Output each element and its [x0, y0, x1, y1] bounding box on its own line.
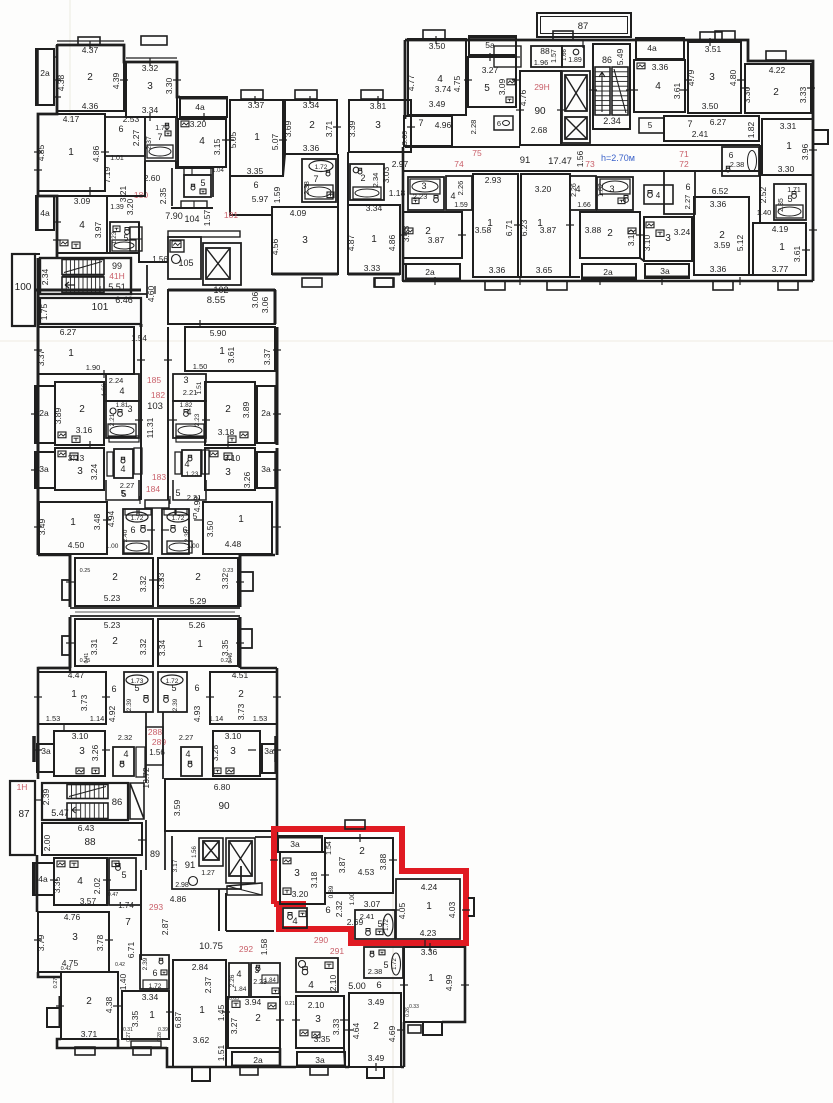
svg-text:6.87: 6.87	[173, 1011, 183, 1028]
svg-text:1: 1	[786, 141, 792, 152]
svg-text:3.09: 3.09	[497, 78, 507, 95]
svg-text:3: 3	[294, 868, 300, 879]
svg-text:2: 2	[195, 572, 201, 583]
svg-text:3: 3	[421, 181, 426, 191]
svg-text:1Н: 1Н	[17, 782, 28, 792]
svg-text:4.87: 4.87	[346, 234, 356, 251]
svg-text:3.89: 3.89	[241, 401, 251, 418]
svg-text:6: 6	[376, 980, 381, 991]
svg-text:1.66: 1.66	[562, 49, 568, 61]
svg-text:4.69: 4.69	[387, 1025, 397, 1042]
svg-text:4a: 4a	[647, 43, 657, 53]
svg-text:1: 1	[68, 147, 74, 158]
svg-text:3.58: 3.58	[475, 225, 492, 235]
svg-text:1: 1	[149, 1010, 155, 1021]
svg-text:2.32: 2.32	[334, 900, 344, 917]
svg-text:1: 1	[197, 639, 203, 650]
svg-text:100: 100	[15, 282, 32, 293]
svg-text:3a: 3a	[264, 746, 274, 756]
svg-text:13.72: 13.72	[141, 767, 151, 789]
svg-text:1.72: 1.72	[131, 515, 144, 522]
svg-text:3.03: 3.03	[381, 166, 391, 183]
svg-text:5: 5	[175, 488, 180, 498]
svg-text:3.36: 3.36	[710, 199, 727, 209]
svg-text:3.61: 3.61	[226, 346, 236, 363]
svg-text:3.49: 3.49	[368, 1053, 385, 1063]
svg-text:2.34: 2.34	[603, 116, 621, 126]
svg-text:90: 90	[218, 801, 230, 812]
svg-text:1.96: 1.96	[534, 58, 549, 67]
svg-text:3.34: 3.34	[303, 100, 320, 110]
svg-text:6: 6	[194, 683, 199, 693]
svg-text:3.30: 3.30	[778, 164, 795, 174]
svg-text:293: 293	[149, 902, 163, 912]
svg-text:5: 5	[648, 121, 653, 130]
svg-text:1.89: 1.89	[568, 57, 582, 64]
svg-text:3a: 3a	[39, 464, 49, 474]
svg-text:3a: 3a	[290, 839, 300, 849]
svg-text:1.14: 1.14	[90, 714, 105, 723]
svg-text:3a: 3a	[261, 464, 271, 474]
svg-text:1.00: 1.00	[349, 892, 356, 905]
svg-text:3.26: 3.26	[90, 744, 100, 761]
svg-text:41Н: 41Н	[109, 271, 125, 281]
svg-text:4.38: 4.38	[104, 996, 114, 1013]
svg-text:1.27: 1.27	[201, 870, 215, 877]
svg-text:1.54: 1.54	[326, 841, 333, 855]
svg-text:2.34: 2.34	[371, 173, 380, 188]
svg-text:11.31: 11.31	[145, 417, 155, 438]
svg-text:4: 4	[123, 749, 128, 759]
svg-text:4.53: 4.53	[358, 867, 375, 877]
svg-text:2: 2	[112, 636, 118, 647]
svg-text:88: 88	[84, 837, 96, 848]
svg-text:4: 4	[185, 749, 190, 759]
svg-text:0.27: 0.27	[53, 978, 59, 989]
svg-text:3.31: 3.31	[89, 638, 99, 655]
svg-text:1.66: 1.66	[577, 202, 591, 209]
svg-text:4.92: 4.92	[192, 495, 202, 512]
svg-text:1.54: 1.54	[131, 334, 147, 343]
svg-text:3.34: 3.34	[142, 992, 159, 1002]
svg-text:17.47: 17.47	[548, 156, 572, 167]
svg-text:h=2.70м: h=2.70м	[601, 153, 635, 163]
svg-text:7: 7	[687, 119, 692, 129]
svg-text:2.28: 2.28	[469, 120, 478, 135]
svg-text:4.51: 4.51	[232, 670, 249, 680]
svg-text:4.24: 4.24	[421, 882, 438, 892]
svg-text:1.45: 1.45	[216, 1004, 226, 1021]
svg-text:3.59: 3.59	[172, 799, 182, 816]
svg-text:1: 1	[68, 348, 74, 359]
svg-text:4.50: 4.50	[68, 540, 85, 550]
svg-text:4.94: 4.94	[106, 510, 116, 527]
svg-text:72: 72	[679, 159, 689, 169]
svg-text:3.50: 3.50	[205, 520, 215, 537]
svg-text:4a: 4a	[40, 208, 50, 218]
svg-text:88: 88	[540, 46, 550, 56]
svg-text:3.62: 3.62	[193, 1035, 210, 1045]
svg-text:4.17: 4.17	[63, 114, 80, 124]
svg-text:1.75: 1.75	[39, 303, 49, 320]
svg-text:2.10: 2.10	[328, 974, 338, 991]
svg-text:3.06: 3.06	[260, 296, 270, 313]
svg-text:4.75: 4.75	[452, 75, 462, 92]
svg-text:5.26: 5.26	[189, 620, 206, 630]
svg-text:3.69: 3.69	[283, 120, 293, 137]
svg-text:75: 75	[472, 148, 482, 158]
svg-text:3.88: 3.88	[378, 853, 388, 870]
svg-text:4a: 4a	[195, 102, 205, 112]
svg-text:1: 1	[426, 901, 432, 912]
svg-text:3.49: 3.49	[429, 99, 446, 109]
svg-text:1.40: 1.40	[118, 973, 128, 990]
svg-text:87: 87	[18, 809, 30, 820]
svg-text:4: 4	[450, 191, 455, 201]
svg-text:3.06: 3.06	[250, 291, 260, 308]
svg-text:3.78: 3.78	[95, 934, 105, 951]
svg-text:182: 182	[151, 390, 165, 400]
svg-text:4: 4	[120, 464, 125, 474]
svg-text:0.41: 0.41	[84, 653, 90, 664]
svg-text:3.20: 3.20	[292, 889, 309, 899]
svg-text:1.51: 1.51	[216, 1044, 226, 1061]
svg-text:2.39: 2.39	[142, 957, 149, 970]
svg-text:3.10: 3.10	[642, 234, 652, 251]
svg-text:2a: 2a	[603, 267, 613, 277]
svg-text:3.87: 3.87	[428, 235, 445, 245]
svg-text:2.39: 2.39	[41, 788, 51, 805]
svg-text:4.76: 4.76	[64, 912, 81, 922]
svg-text:2.26: 2.26	[571, 183, 578, 197]
svg-text:3.33: 3.33	[364, 263, 381, 273]
svg-text:3.49: 3.49	[368, 997, 385, 1007]
svg-text:1.40: 1.40	[757, 208, 772, 217]
svg-text:2.38: 2.38	[730, 160, 745, 169]
svg-text:6.71: 6.71	[504, 219, 514, 236]
svg-text:4.86: 4.86	[387, 234, 397, 251]
svg-text:5.49: 5.49	[615, 48, 625, 65]
svg-text:6: 6	[325, 905, 330, 916]
svg-text:3.37: 3.37	[262, 348, 272, 365]
svg-text:1.59: 1.59	[272, 186, 282, 203]
svg-text:6: 6	[253, 180, 258, 190]
svg-text:3: 3	[315, 1014, 321, 1025]
svg-text:1.72: 1.72	[149, 983, 162, 990]
svg-text:4.38: 4.38	[56, 74, 66, 91]
svg-text:87: 87	[578, 21, 589, 32]
svg-text:2: 2	[309, 120, 315, 131]
svg-text:3.31: 3.31	[780, 121, 797, 131]
svg-text:101: 101	[92, 302, 109, 313]
svg-text:4.03: 4.03	[447, 901, 457, 918]
svg-text:1.59: 1.59	[454, 202, 468, 209]
svg-text:3.37: 3.37	[248, 100, 265, 110]
svg-text:3.20: 3.20	[535, 184, 552, 194]
svg-text:4.39: 4.39	[111, 72, 121, 89]
svg-text:86: 86	[112, 797, 123, 808]
svg-text:4.56: 4.56	[270, 238, 280, 255]
svg-text:3.73: 3.73	[79, 694, 89, 711]
svg-text:2: 2	[359, 846, 365, 857]
svg-text:99: 99	[112, 261, 122, 271]
svg-text:3: 3	[147, 81, 153, 92]
svg-text:5.07: 5.07	[270, 133, 280, 150]
svg-text:7: 7	[418, 118, 423, 128]
svg-text:3: 3	[77, 466, 83, 477]
svg-text:3.09: 3.09	[74, 196, 91, 206]
svg-text:3a: 3a	[41, 746, 51, 756]
svg-text:1: 1	[779, 242, 785, 253]
svg-text:4.76: 4.76	[518, 89, 528, 106]
svg-text:2: 2	[255, 1013, 261, 1024]
svg-text:1.81: 1.81	[116, 402, 129, 409]
svg-text:1.53: 1.53	[46, 714, 61, 723]
svg-text:2.10: 2.10	[308, 1000, 325, 1010]
svg-text:91: 91	[185, 860, 196, 871]
svg-text:6.71: 6.71	[126, 941, 136, 958]
svg-text:5: 5	[200, 178, 205, 188]
svg-text:2a: 2a	[39, 408, 49, 418]
svg-text:73: 73	[585, 159, 595, 169]
svg-text:7.19: 7.19	[102, 166, 112, 183]
svg-text:0.46: 0.46	[228, 653, 234, 664]
svg-text:3.36: 3.36	[303, 143, 320, 153]
svg-text:1.00: 1.00	[187, 543, 200, 550]
svg-text:3.71: 3.71	[81, 1029, 98, 1039]
svg-text:1.72: 1.72	[315, 164, 328, 171]
svg-text:181: 181	[224, 210, 238, 220]
svg-text:2.00: 2.00	[42, 834, 52, 851]
svg-text:1.73: 1.73	[131, 678, 144, 685]
svg-text:3.18: 3.18	[309, 871, 319, 888]
svg-text:6: 6	[111, 684, 116, 694]
svg-text:1: 1	[238, 514, 244, 525]
svg-text:2a: 2a	[253, 1055, 263, 1065]
svg-text:1.14: 1.14	[209, 714, 224, 723]
svg-text:5: 5	[377, 919, 382, 929]
svg-text:4.96: 4.96	[435, 120, 452, 130]
svg-text:4.77: 4.77	[406, 74, 416, 91]
svg-text:3.17: 3.17	[172, 859, 179, 872]
svg-text:4.79: 4.79	[686, 69, 696, 86]
svg-text:1.56: 1.56	[152, 255, 168, 264]
svg-text:2: 2	[225, 404, 231, 415]
svg-text:1: 1	[428, 973, 434, 984]
svg-text:1.72: 1.72	[392, 958, 398, 970]
svg-text:6.46: 6.46	[115, 295, 133, 305]
svg-text:3: 3	[183, 375, 188, 385]
svg-text:6.27: 6.27	[60, 327, 77, 337]
svg-text:3.37: 3.37	[36, 349, 46, 366]
svg-text:1: 1	[254, 132, 260, 143]
svg-text:2.27: 2.27	[179, 733, 194, 742]
svg-text:7: 7	[313, 174, 318, 184]
svg-text:5: 5	[484, 83, 490, 94]
svg-text:4.19: 4.19	[772, 224, 789, 234]
svg-text:5.23: 5.23	[104, 593, 121, 603]
svg-text:1.56: 1.56	[149, 748, 165, 757]
svg-text:3.32: 3.32	[220, 572, 230, 589]
svg-text:0.89: 0.89	[328, 885, 335, 898]
svg-text:0.26: 0.26	[405, 1007, 411, 1017]
svg-text:4.47: 4.47	[68, 670, 85, 680]
svg-text:1.23: 1.23	[186, 471, 199, 478]
svg-text:2.84: 2.84	[192, 962, 209, 972]
svg-text:3.94: 3.94	[245, 997, 262, 1007]
svg-text:4.09: 4.09	[290, 208, 307, 218]
svg-text:3.73: 3.73	[236, 703, 246, 720]
svg-text:2: 2	[373, 1021, 379, 1032]
svg-text:1.39: 1.39	[110, 204, 124, 211]
svg-text:2.32: 2.32	[118, 733, 133, 742]
svg-text:3: 3	[79, 746, 85, 757]
svg-text:4.05: 4.05	[397, 902, 407, 919]
svg-text:1.56: 1.56	[575, 150, 585, 167]
svg-text:2.27: 2.27	[131, 129, 141, 146]
svg-text:3.48: 3.48	[92, 513, 102, 530]
svg-text:288: 288	[148, 727, 162, 737]
svg-text:3.35: 3.35	[247, 166, 264, 176]
svg-text:3.51: 3.51	[705, 44, 722, 54]
svg-text:3.69: 3.69	[400, 131, 409, 146]
svg-text:3.34: 3.34	[157, 639, 167, 656]
svg-text:3.36: 3.36	[421, 947, 438, 957]
svg-text:3.50: 3.50	[429, 41, 446, 51]
svg-text:3.88: 3.88	[585, 225, 602, 235]
svg-text:5: 5	[121, 488, 126, 498]
svg-text:6: 6	[118, 124, 123, 134]
svg-text:2.97: 2.97	[392, 159, 409, 169]
svg-text:1.01: 1.01	[110, 155, 124, 162]
svg-text:1.84: 1.84	[264, 978, 276, 984]
svg-text:1.50: 1.50	[193, 362, 208, 371]
svg-text:3.26: 3.26	[242, 471, 252, 488]
svg-text:91: 91	[520, 155, 531, 166]
svg-text:2.39: 2.39	[172, 698, 179, 711]
svg-text:2.35: 2.35	[158, 187, 168, 204]
svg-text:104: 104	[184, 214, 199, 224]
svg-text:6: 6	[729, 150, 734, 160]
svg-text:3.32: 3.32	[138, 638, 148, 655]
svg-text:2.26: 2.26	[456, 181, 465, 196]
svg-text:4.64: 4.64	[351, 1022, 361, 1039]
svg-text:3.97: 3.97	[93, 221, 103, 238]
svg-text:4: 4	[308, 980, 314, 991]
svg-text:184: 184	[146, 484, 160, 494]
svg-text:2: 2	[238, 689, 244, 700]
svg-text:6: 6	[130, 525, 135, 535]
svg-text:3.32: 3.32	[138, 575, 148, 592]
svg-text:3.33: 3.33	[798, 86, 808, 103]
svg-text:4: 4	[79, 220, 85, 231]
svg-text:5.00: 5.00	[348, 981, 366, 991]
svg-text:6.80: 6.80	[214, 782, 231, 792]
svg-text:0.39: 0.39	[158, 1027, 168, 1033]
svg-text:1.51: 1.51	[196, 381, 203, 394]
svg-text:3: 3	[302, 235, 308, 246]
svg-text:4: 4	[656, 191, 661, 200]
svg-text:4: 4	[655, 81, 661, 92]
svg-text:3.50: 3.50	[702, 101, 719, 111]
svg-text:0.21: 0.21	[285, 1001, 295, 1007]
svg-text:291: 291	[330, 946, 344, 956]
svg-text:3: 3	[609, 184, 614, 194]
svg-text:2.68: 2.68	[531, 125, 548, 135]
svg-text:1.82: 1.82	[180, 402, 193, 409]
svg-text:1.56: 1.56	[192, 846, 198, 858]
svg-text:1.04: 1.04	[212, 168, 224, 174]
svg-text:3.74: 3.74	[435, 84, 452, 94]
svg-text:7: 7	[157, 132, 162, 142]
svg-text:0.23: 0.23	[223, 568, 234, 574]
svg-text:2: 2	[86, 996, 92, 1007]
svg-text:1: 1	[199, 1005, 205, 1016]
svg-text:3: 3	[375, 120, 381, 131]
svg-text:1.57: 1.57	[551, 49, 558, 63]
svg-text:3.65: 3.65	[536, 265, 553, 275]
svg-text:289: 289	[152, 737, 166, 747]
svg-text:4.86: 4.86	[91, 145, 101, 162]
svg-text:6: 6	[497, 119, 501, 128]
svg-text:3.59: 3.59	[714, 240, 731, 250]
svg-text:2.34: 2.34	[40, 268, 50, 285]
svg-text:2.37: 2.37	[203, 976, 213, 993]
svg-text:1.72: 1.72	[166, 678, 179, 685]
svg-text:2.60: 2.60	[144, 173, 161, 183]
svg-text:3.71: 3.71	[324, 120, 334, 137]
svg-text:3.77: 3.77	[772, 264, 789, 274]
svg-text:7.90: 7.90	[165, 211, 183, 221]
svg-text:0.42: 0.42	[61, 966, 72, 972]
svg-text:2: 2	[79, 404, 85, 415]
svg-text:2: 2	[360, 173, 365, 183]
svg-text:1: 1	[219, 346, 225, 357]
svg-text:2a: 2a	[261, 408, 271, 418]
svg-text:5.47: 5.47	[51, 808, 69, 818]
svg-text:5.23: 5.23	[104, 620, 121, 630]
svg-text:5: 5	[121, 870, 126, 880]
svg-text:4a: 4a	[38, 874, 48, 884]
svg-text:2.98: 2.98	[175, 882, 189, 889]
svg-text:1.53: 1.53	[253, 714, 268, 723]
svg-text:0.31: 0.31	[123, 1027, 133, 1033]
svg-text:5.29: 5.29	[190, 596, 207, 606]
svg-text:3: 3	[665, 233, 671, 244]
svg-text:3.24: 3.24	[674, 227, 691, 237]
svg-text:2: 2	[607, 228, 613, 239]
svg-text:1.58: 1.58	[259, 938, 269, 955]
svg-text:3: 3	[709, 72, 715, 83]
svg-text:1.84: 1.84	[234, 986, 247, 993]
svg-text:3.36: 3.36	[652, 62, 669, 72]
svg-text:10.75: 10.75	[199, 941, 223, 952]
svg-text:8.55: 8.55	[207, 295, 226, 306]
svg-text:3.24: 3.24	[89, 463, 99, 480]
svg-text:4.85: 4.85	[36, 144, 46, 161]
svg-text:185: 185	[147, 375, 161, 385]
svg-text:3.30: 3.30	[164, 77, 174, 94]
svg-text:2.27: 2.27	[683, 195, 692, 210]
svg-text:2.41: 2.41	[692, 129, 709, 139]
svg-text:3.10: 3.10	[72, 731, 89, 741]
svg-text:4.22: 4.22	[769, 65, 786, 75]
svg-text:5: 5	[383, 960, 388, 970]
svg-text:4: 4	[292, 916, 297, 927]
svg-text:4.80: 4.80	[728, 69, 738, 86]
svg-text:74: 74	[454, 159, 464, 169]
svg-text:71: 71	[679, 149, 689, 159]
